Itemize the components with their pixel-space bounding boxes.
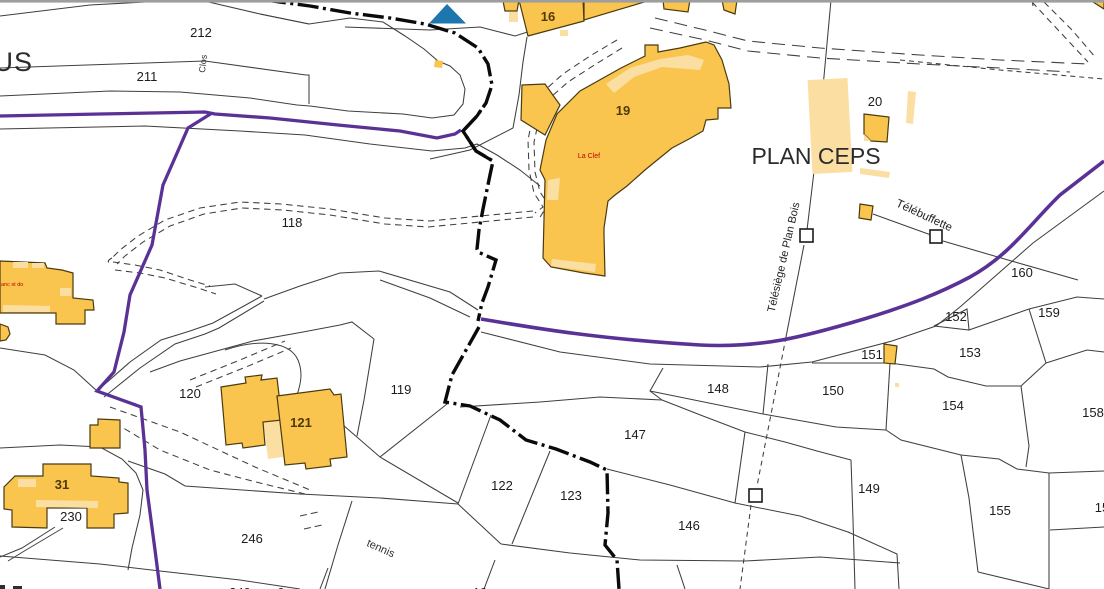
svg-text:148: 148: [707, 381, 729, 396]
svg-text:119: 119: [391, 382, 412, 397]
svg-text:159: 159: [1038, 305, 1060, 320]
svg-text:212: 212: [190, 25, 212, 40]
svg-text:147: 147: [624, 427, 646, 442]
svg-text:19: 19: [616, 103, 630, 118]
svg-text:31: 31: [55, 477, 69, 492]
svg-text:150: 150: [822, 383, 844, 398]
svg-text:121: 121: [290, 415, 312, 430]
svg-text:160: 160: [1011, 265, 1033, 280]
svg-text:16: 16: [541, 9, 555, 24]
svg-text:anc st do: anc st do: [1, 282, 23, 288]
svg-text:US: US: [0, 47, 33, 77]
svg-text:246: 246: [241, 531, 263, 546]
svg-text:0: 0: [277, 585, 284, 589]
svg-text:123: 123: [560, 488, 582, 503]
svg-text:La Clef: La Clef: [578, 153, 600, 160]
svg-text:211: 211: [137, 69, 158, 84]
svg-text:20: 20: [868, 94, 882, 109]
svg-text:153: 153: [959, 345, 981, 360]
svg-text:19: 19: [473, 585, 487, 589]
svg-text:149: 149: [858, 481, 880, 496]
svg-text:152: 152: [945, 309, 967, 324]
svg-text:146: 146: [678, 518, 700, 533]
svg-text:122: 122: [491, 478, 513, 493]
svg-text:15: 15: [1095, 500, 1104, 515]
svg-text:PLAN CEPS: PLAN CEPS: [751, 143, 880, 169]
svg-text:151: 151: [861, 347, 883, 362]
svg-text:118: 118: [282, 215, 303, 230]
svg-text:155: 155: [989, 503, 1011, 518]
svg-text:230: 230: [60, 509, 82, 524]
svg-text:154: 154: [942, 398, 964, 413]
svg-text:120: 120: [179, 386, 201, 401]
svg-text:158: 158: [1082, 405, 1104, 420]
svg-text:249: 249: [229, 585, 251, 589]
